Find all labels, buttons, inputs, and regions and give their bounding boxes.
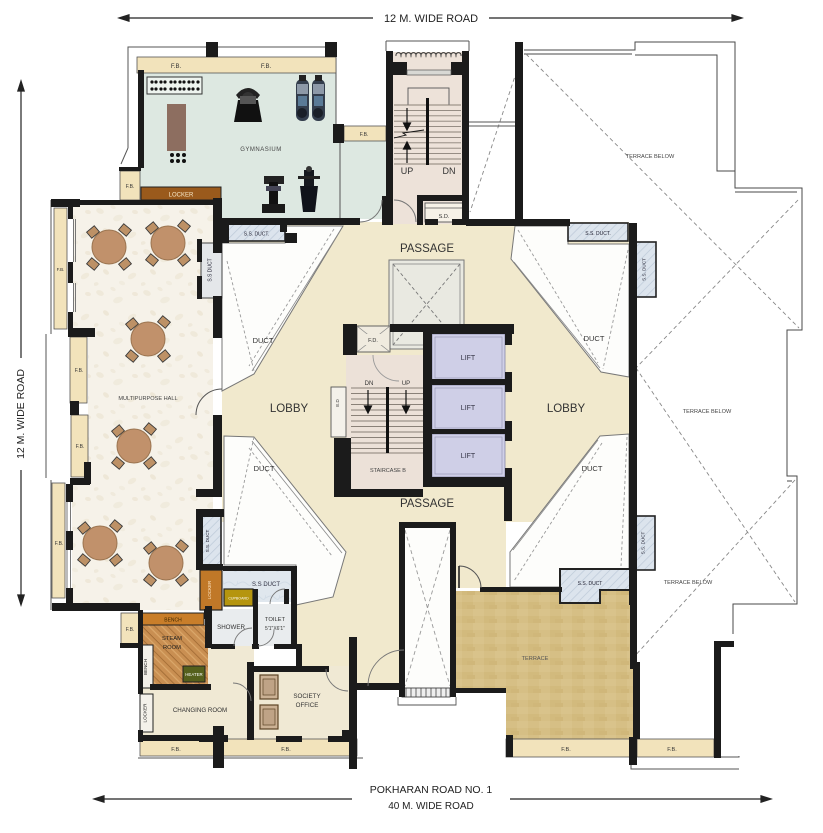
svg-text:UP: UP	[402, 381, 410, 387]
svg-text:12 M. WIDE ROAD: 12 M. WIDE ROAD	[15, 369, 27, 459]
svg-text:S.S. DUCT: S.S. DUCT	[578, 581, 603, 587]
svg-text:CHANGING ROOM: CHANGING ROOM	[173, 707, 227, 714]
svg-text:POKHARAN ROAD NO. 1: POKHARAN ROAD NO. 1	[370, 784, 493, 796]
svg-text:F.B.: F.B.	[126, 627, 135, 633]
svg-text:OFFICE: OFFICE	[296, 702, 319, 709]
svg-text:HEATER: HEATER	[185, 672, 202, 677]
svg-text:LOCKER: LOCKER	[169, 193, 194, 199]
svg-text:F.B.: F.B.	[126, 184, 135, 190]
svg-text:SHOWER: SHOWER	[217, 624, 245, 631]
svg-text:F.B.: F.B.	[261, 64, 272, 70]
svg-text:TERRACE BELOW: TERRACE BELOW	[626, 154, 675, 160]
svg-text:CUPBOARD: CUPBOARD	[228, 597, 249, 601]
svg-text:F.B.: F.B.	[75, 368, 84, 374]
svg-text:TERRACE BELOW: TERRACE BELOW	[664, 580, 713, 586]
svg-text:GYMNASIUM: GYMNASIUM	[240, 147, 282, 153]
svg-text:S.S. DUCT: S.S. DUCT	[641, 531, 646, 554]
svg-text:S.S DUCT: S.S DUCT	[208, 258, 214, 281]
svg-text:F.B.: F.B.	[57, 267, 65, 272]
svg-text:LIFT: LIFT	[461, 405, 476, 412]
svg-text:40 M. WIDE ROAD: 40 M. WIDE ROAD	[388, 801, 474, 812]
svg-text:STAIRCASE B: STAIRCASE B	[370, 468, 406, 474]
svg-text:DUCT: DUCT	[582, 464, 603, 473]
svg-text:F.B.: F.B.	[561, 747, 571, 753]
svg-text:LOCKER: LOCKER	[207, 580, 212, 599]
svg-text:UP: UP	[401, 166, 414, 176]
svg-text:S.S. DUCT.: S.S. DUCT.	[244, 232, 270, 238]
svg-text:DUCT: DUCT	[254, 464, 275, 473]
svg-text:LIFT: LIFT	[461, 355, 476, 362]
svg-text:DUCT: DUCT	[253, 336, 274, 345]
svg-text:S.D.: S.D.	[439, 214, 450, 220]
svg-text:STEAM: STEAM	[162, 636, 182, 642]
svg-text:BENCH: BENCH	[164, 618, 182, 624]
svg-text:F.B.: F.B.	[171, 64, 182, 70]
svg-text:F.B.: F.B.	[281, 747, 291, 753]
svg-text:F.D.: F.D.	[368, 338, 378, 344]
svg-text:5'1"X6'1": 5'1"X6'1"	[265, 626, 285, 632]
svg-text:LIFT: LIFT	[461, 453, 476, 460]
svg-text:F.B.: F.B.	[76, 444, 85, 450]
svg-text:LOCKER: LOCKER	[143, 703, 148, 723]
svg-text:S.S. DUCT: S.S. DUCT	[642, 258, 647, 281]
svg-text:TOILET: TOILET	[265, 617, 286, 623]
svg-text:LOBBY: LOBBY	[547, 403, 586, 415]
svg-text:S.S DUCT: S.S DUCT	[252, 582, 280, 588]
svg-text:BENCH: BENCH	[143, 659, 148, 675]
svg-text:S.S. DUCT.: S.S. DUCT.	[585, 231, 611, 237]
svg-text:DUCT: DUCT	[584, 334, 605, 343]
svg-text:F.B.: F.B.	[55, 541, 64, 547]
svg-text:F.B.: F.B.	[667, 747, 677, 753]
svg-text:PASSAGE: PASSAGE	[400, 498, 454, 510]
svg-text:E.D: E.D	[335, 399, 340, 407]
svg-text:DN: DN	[443, 166, 456, 176]
svg-text:F.B.: F.B.	[171, 747, 181, 753]
svg-text:TERRACE BELOW: TERRACE BELOW	[683, 409, 732, 415]
svg-text:DN: DN	[365, 381, 374, 387]
svg-text:S.S. DUCT: S.S. DUCT	[205, 529, 210, 552]
svg-text:LOBBY: LOBBY	[270, 403, 309, 415]
svg-text:MULTIPURPOSE HALL: MULTIPURPOSE HALL	[118, 396, 177, 402]
svg-text:PASSAGE: PASSAGE	[400, 243, 454, 255]
svg-text:12 M. WIDE ROAD: 12 M. WIDE ROAD	[384, 13, 478, 25]
svg-text:ROOM: ROOM	[163, 645, 181, 651]
svg-text:SOCIETY: SOCIETY	[293, 693, 320, 700]
svg-text:TERRACE: TERRACE	[522, 656, 549, 662]
svg-text:F.B.: F.B.	[360, 132, 369, 138]
